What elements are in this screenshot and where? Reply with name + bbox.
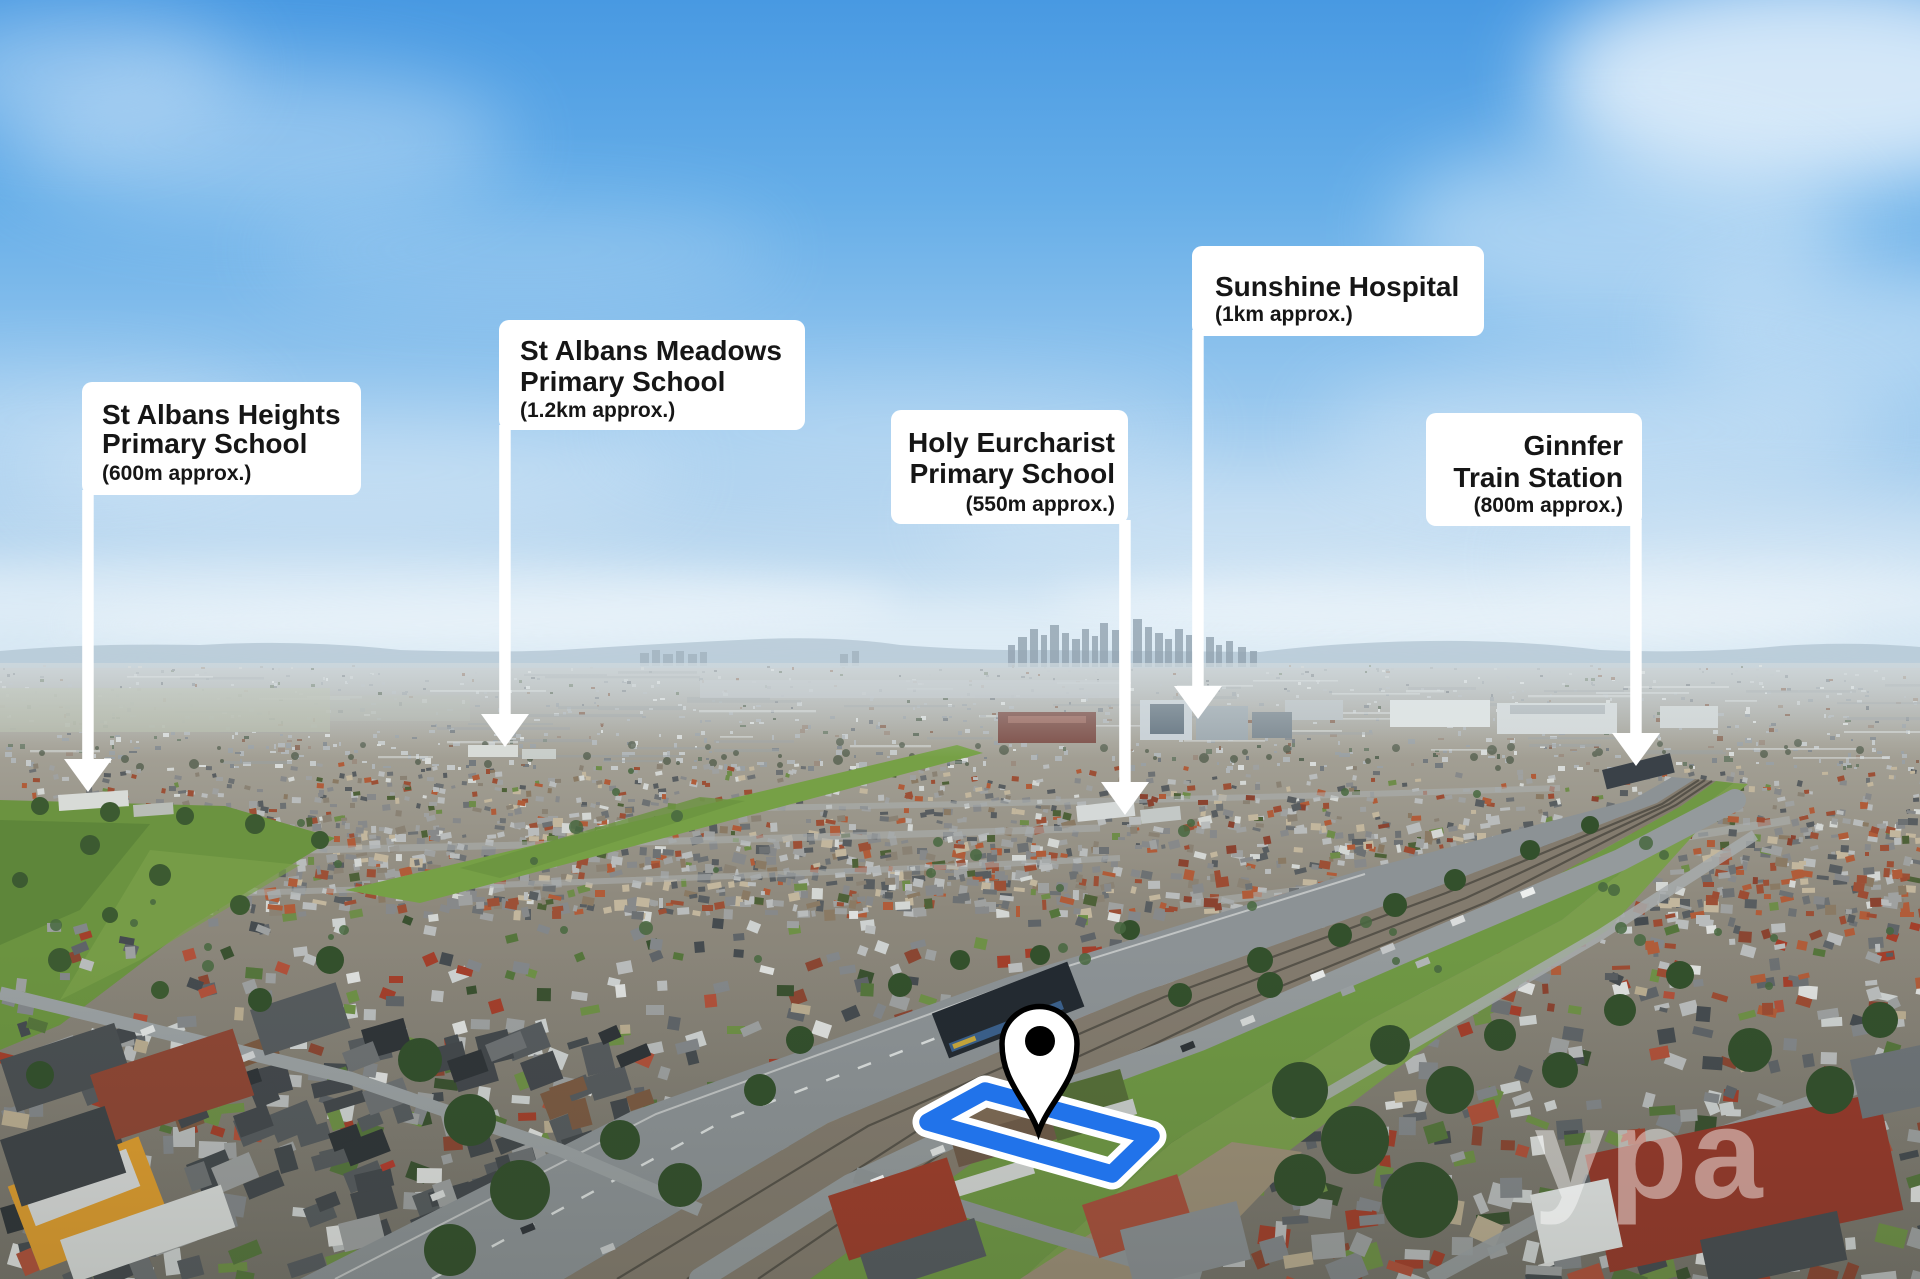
- svg-text:(800m approx.): (800m approx.): [1474, 494, 1623, 517]
- svg-text:St Albans Meadows: St Albans Meadows: [520, 335, 782, 366]
- svg-text:(550m approx.): (550m approx.): [966, 493, 1115, 516]
- svg-text:Train Station: Train Station: [1453, 462, 1623, 493]
- svg-text:Sunshine Hospital: Sunshine Hospital: [1215, 271, 1459, 302]
- svg-text:Primary School: Primary School: [102, 428, 307, 459]
- svg-text:ypa: ypa: [1534, 1083, 1767, 1226]
- svg-text:Ginnfer: Ginnfer: [1523, 430, 1623, 461]
- svg-text:(1km approx.): (1km approx.): [1215, 303, 1353, 326]
- svg-text:Primary School: Primary School: [910, 458, 1115, 489]
- svg-text:St Albans Heights: St Albans Heights: [102, 399, 341, 430]
- svg-text:Primary School: Primary School: [520, 366, 725, 397]
- svg-text:Holy Eurcharist: Holy Eurcharist: [908, 427, 1115, 458]
- svg-text:(1.2km approx.): (1.2km approx.): [520, 399, 675, 422]
- svg-text:(600m approx.): (600m approx.): [102, 462, 251, 485]
